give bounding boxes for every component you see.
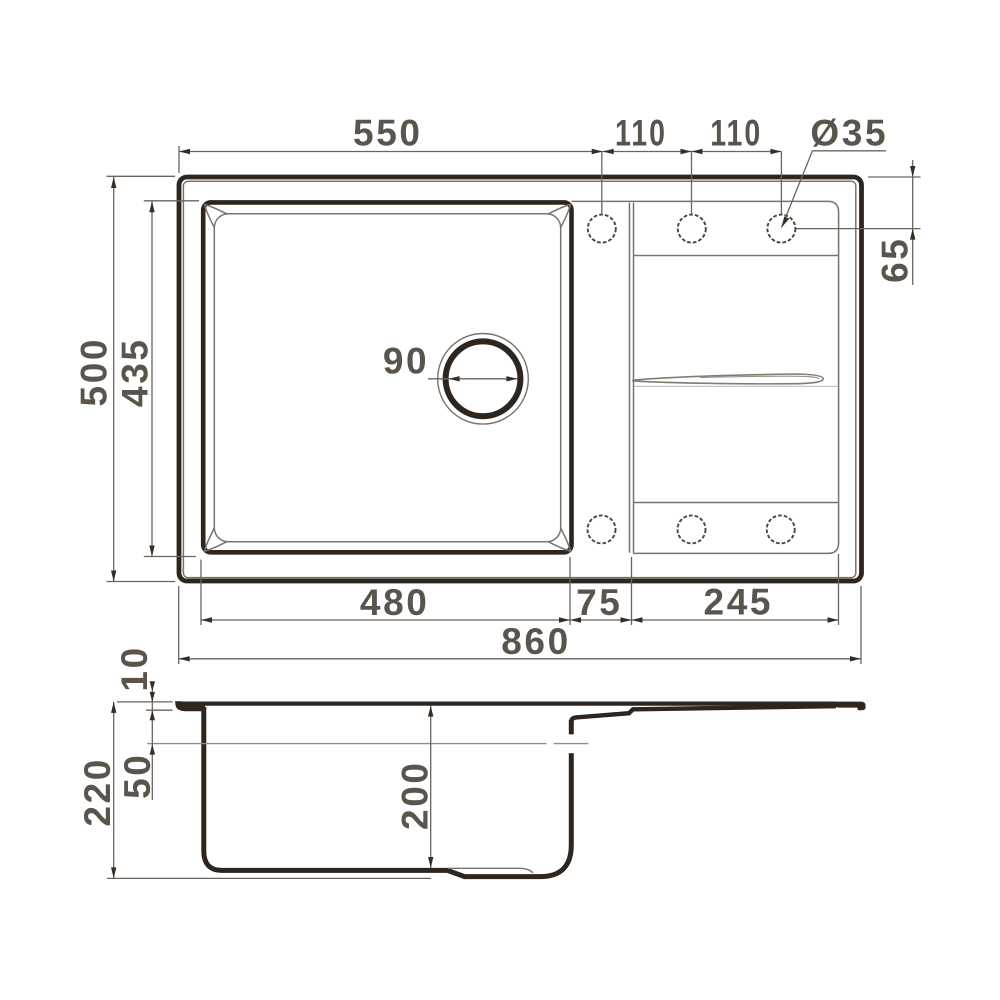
- svg-text:10: 10: [114, 645, 155, 691]
- svg-text:550: 550: [353, 112, 423, 153]
- svg-text:220: 220: [77, 757, 118, 827]
- svg-text:245: 245: [704, 582, 774, 623]
- svg-text:200: 200: [395, 760, 436, 830]
- svg-text:75: 75: [576, 582, 622, 623]
- svg-text:65: 65: [874, 237, 915, 283]
- svg-text:860: 860: [501, 621, 571, 662]
- svg-text:435: 435: [114, 337, 155, 407]
- svg-text:90: 90: [383, 341, 429, 382]
- svg-text:500: 500: [74, 337, 115, 407]
- svg-text:50: 50: [117, 753, 158, 799]
- svg-text:110: 110: [710, 112, 762, 153]
- svg-text:Ø35: Ø35: [810, 112, 888, 153]
- svg-text:480: 480: [360, 582, 430, 623]
- svg-text:110: 110: [615, 112, 667, 153]
